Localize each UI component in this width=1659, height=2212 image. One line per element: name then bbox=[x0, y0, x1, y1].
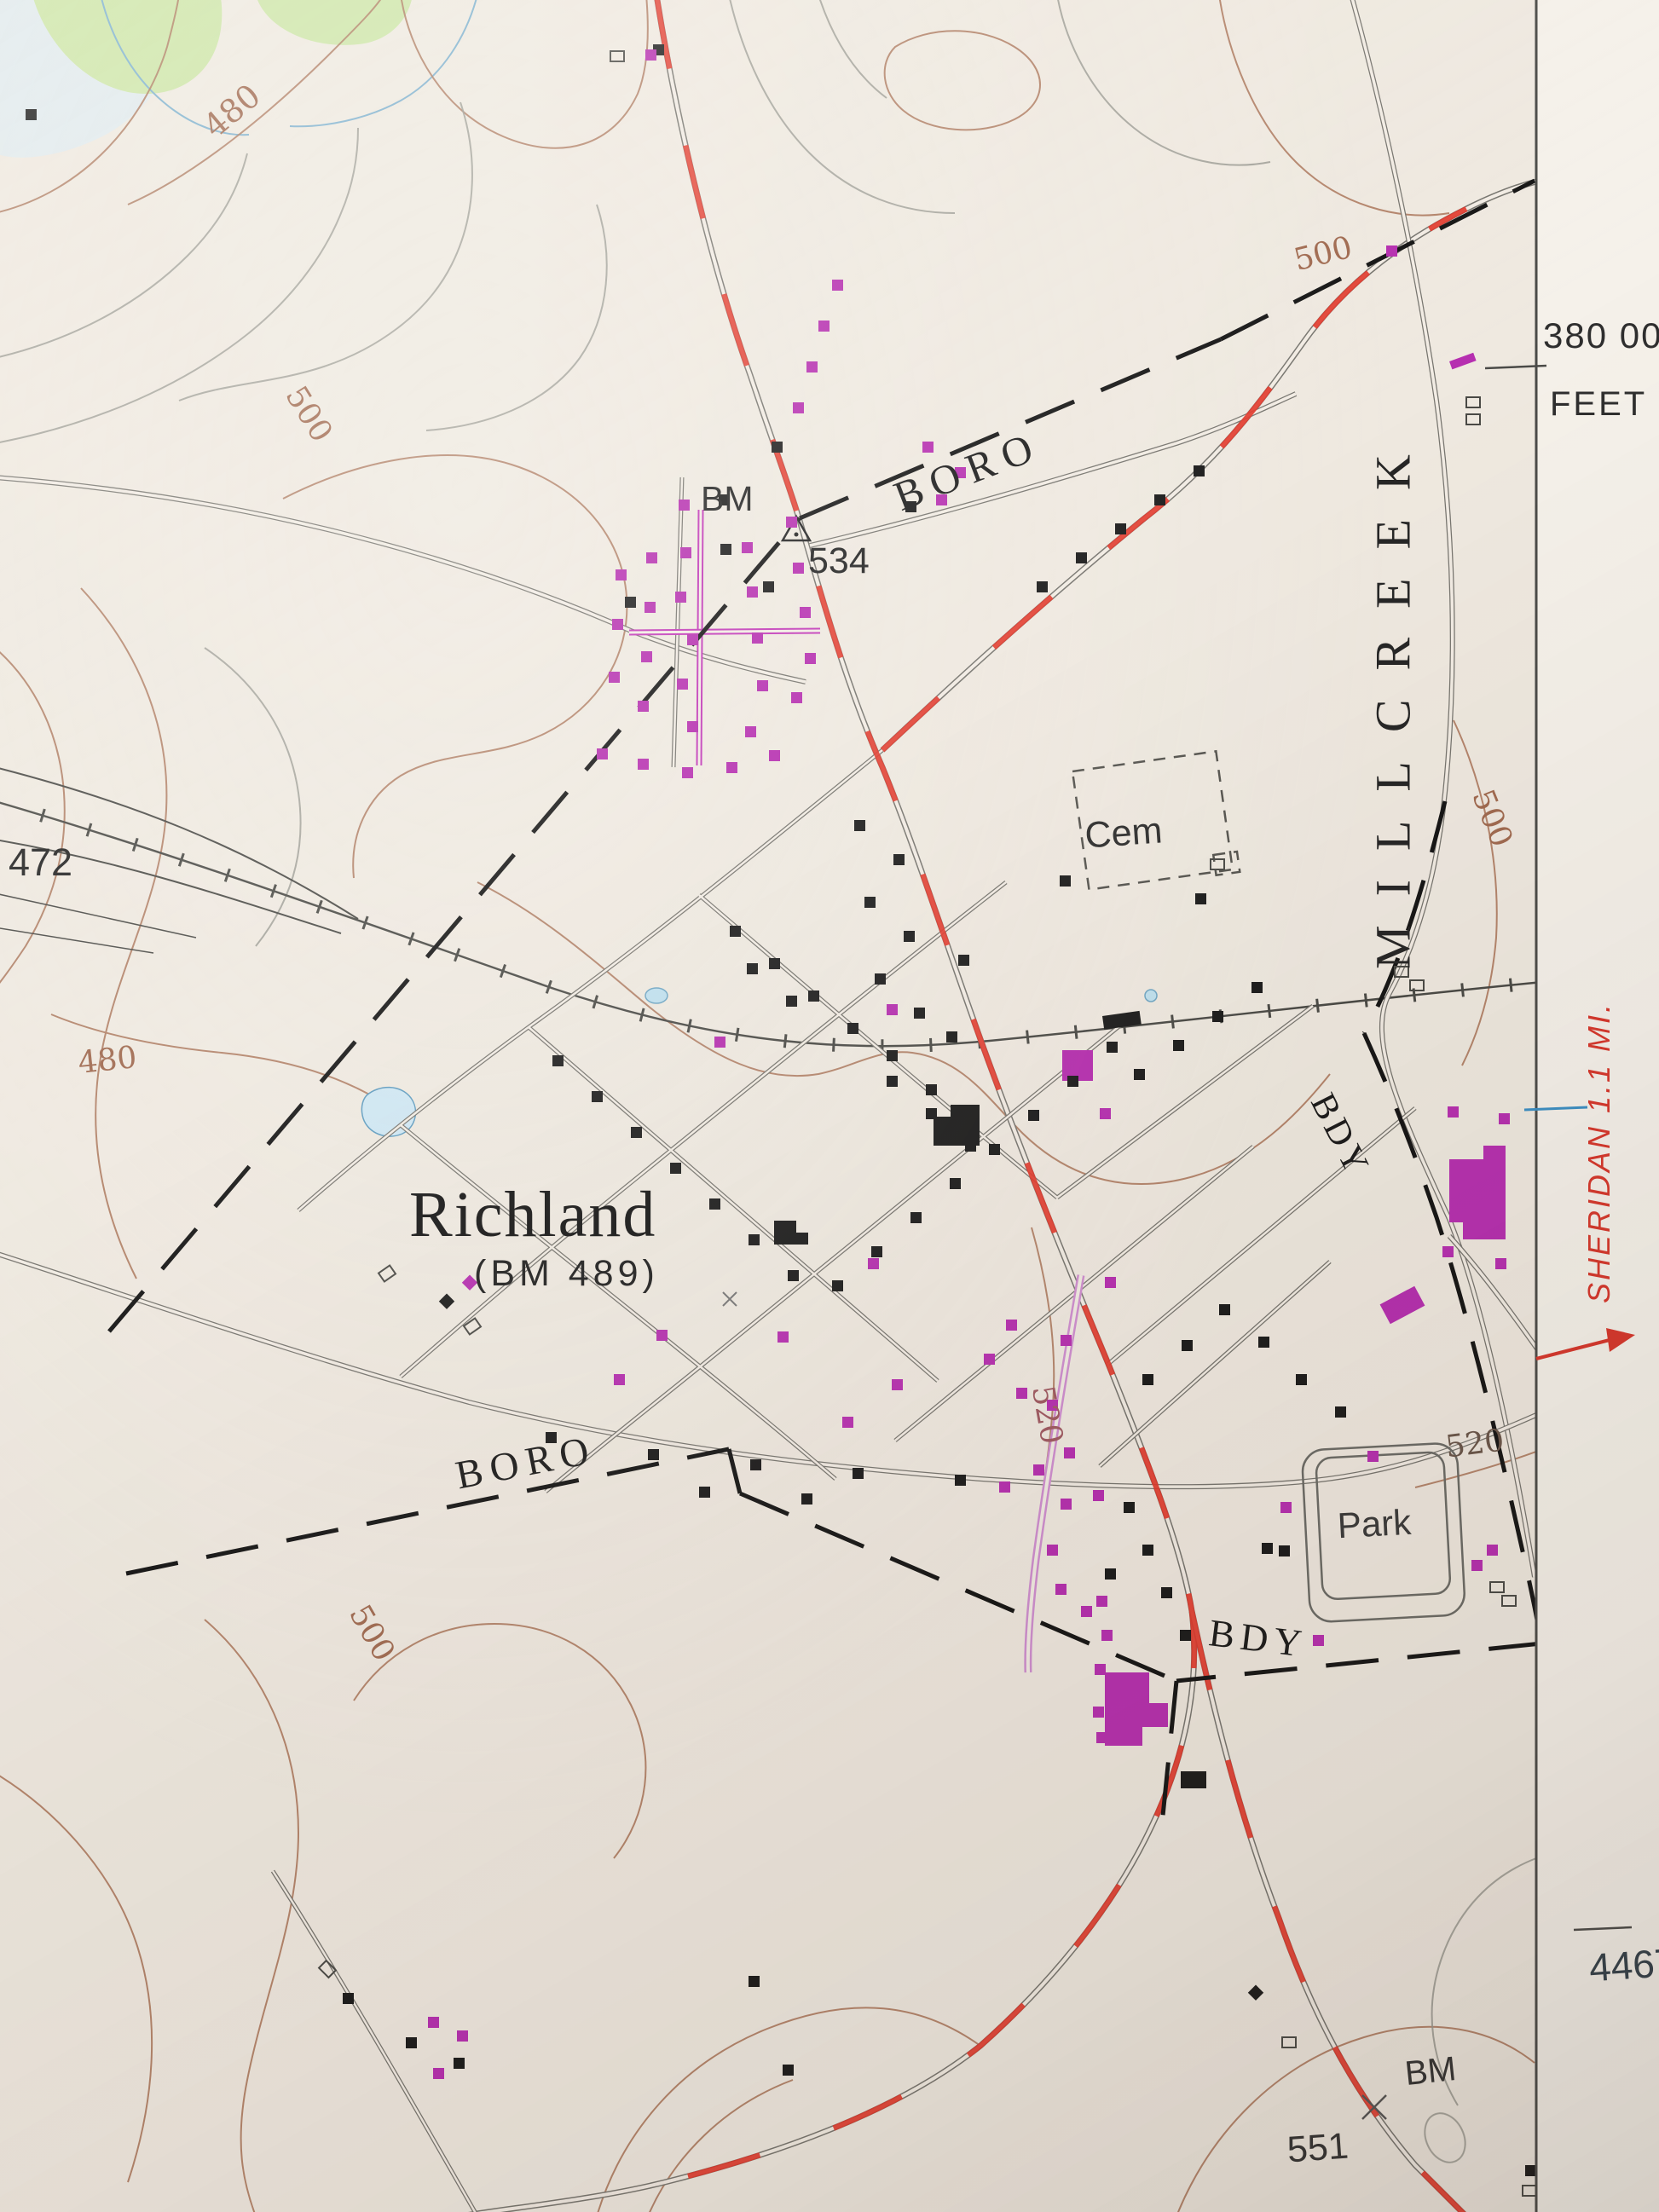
benchmark-north-label: BM bbox=[701, 479, 754, 519]
spot-elevation-west: 472 bbox=[9, 840, 72, 885]
pond bbox=[645, 988, 668, 1003]
contour-label-520-east: 520 bbox=[1443, 1423, 1506, 1464]
topo-map-canvas bbox=[0, 0, 1659, 2212]
pond bbox=[1145, 990, 1157, 1002]
topo-map-sheet: Richland (BM 489) MILLCREEK BORO BORO BD… bbox=[0, 0, 1659, 2212]
purple-buildings bbox=[428, 49, 1510, 2079]
benchmark-southeast-elevation: 551 bbox=[1286, 2126, 1350, 2172]
park-label: Park bbox=[1337, 1502, 1413, 1546]
town-benchmark-label: (BM 489) bbox=[474, 1253, 659, 1295]
cemetery-label: Cem bbox=[1084, 810, 1164, 857]
town-label: Richland bbox=[409, 1178, 656, 1252]
grid-feet-value: 380 00 bbox=[1543, 315, 1659, 356]
destination-note: SHERIDAN 1.1 MI. bbox=[1581, 1002, 1617, 1303]
contour-lines-gray bbox=[0, 0, 1536, 2169]
contour-label-480-w: 480 bbox=[77, 1040, 139, 1081]
township-label: MILLCREEK bbox=[1365, 425, 1422, 969]
benchmark-southeast-label: BM bbox=[1403, 2050, 1458, 2094]
grid-feet-unit: FEET bbox=[1550, 385, 1647, 424]
benchmark-north-elevation: 534 bbox=[808, 540, 870, 582]
spot-x bbox=[723, 1292, 737, 1306]
woodland-area bbox=[256, 0, 413, 45]
grid-northing: 4467 bbox=[1587, 1938, 1659, 1990]
